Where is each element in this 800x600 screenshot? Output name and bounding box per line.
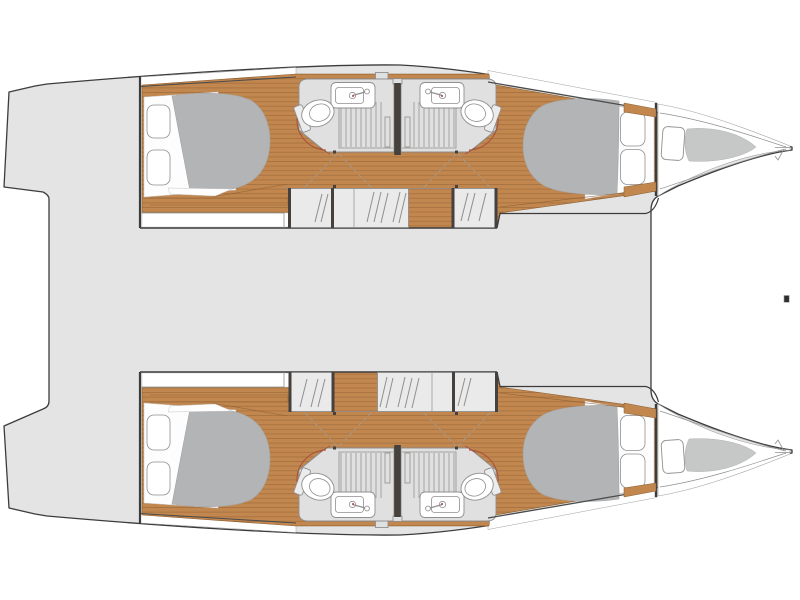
companionway-steps (284, 188, 498, 228)
hull-starboard (140, 372, 791, 533)
forward-double-berth (523, 99, 619, 195)
sink (331, 83, 375, 109)
deck-plan-page (0, 0, 800, 600)
hull-port (140, 68, 791, 229)
aft-cabin-side-locker (142, 213, 290, 227)
bathroom-divider-wall (394, 83, 401, 155)
steps-core-use (289, 372, 503, 412)
bow-hatch (661, 126, 685, 160)
faucet-accent-dot (352, 95, 354, 97)
catamaran-deck-plan (0, 0, 800, 600)
forward-pillow-1 (621, 112, 646, 146)
door-post (455, 151, 458, 154)
step-box-small (290, 189, 333, 228)
companionway-steps-mirrored (289, 372, 503, 412)
door-post (455, 185, 458, 188)
door-post (333, 185, 336, 188)
step-post (495, 188, 498, 228)
step-box-end (454, 189, 497, 228)
bathroom-vent-tab (376, 73, 389, 80)
aft-pillow-2 (147, 150, 170, 185)
step-post (452, 188, 455, 228)
aft-pillow-1 (147, 105, 170, 138)
step-post (331, 188, 334, 228)
centerline-fitting-mark (784, 296, 789, 303)
step-post (288, 188, 291, 228)
faucet-knob (365, 89, 370, 94)
forward-pillow-2 (621, 150, 646, 185)
door-post (333, 151, 336, 154)
